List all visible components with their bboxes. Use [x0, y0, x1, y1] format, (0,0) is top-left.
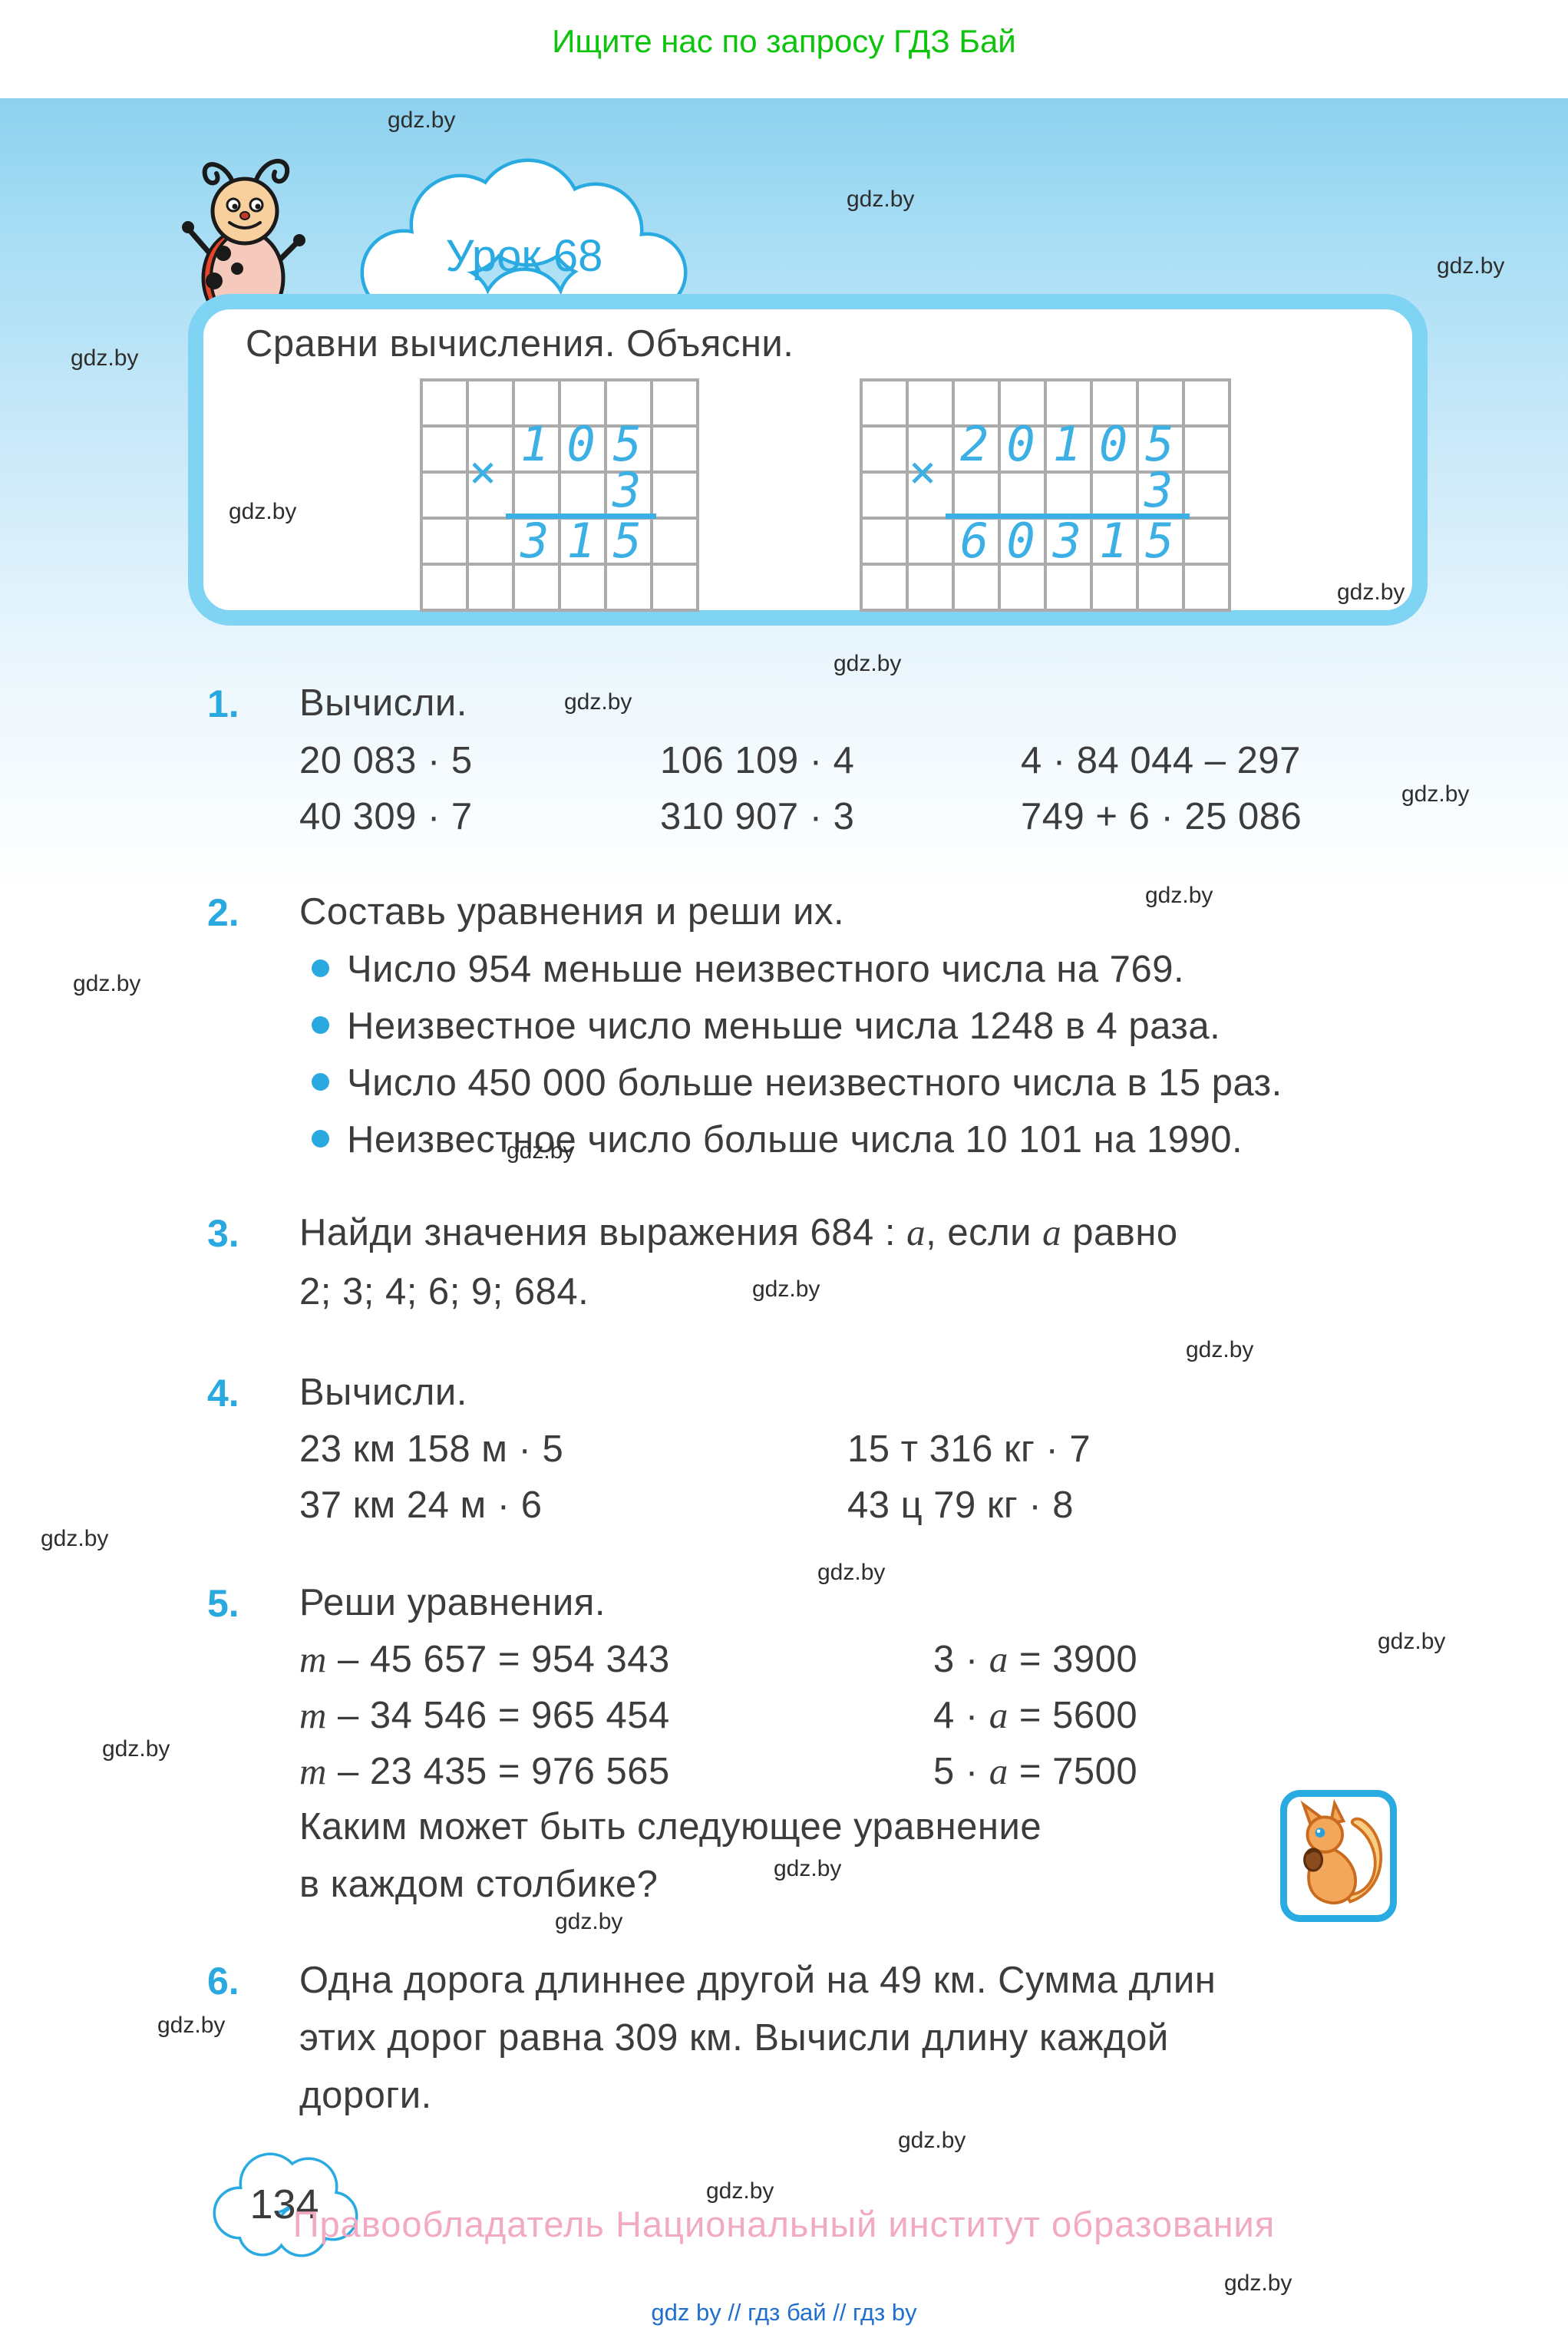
handwritten-multiplier: 3	[1144, 467, 1190, 514]
exercise-5-question: в каждом столбике?	[299, 1863, 658, 1906]
math-var: a	[906, 1211, 926, 1253]
multiplication-sign: ×	[469, 449, 497, 495]
textbook-page: Ищите нас по запросу ГДЗ Бай	[0, 0, 1568, 2338]
text-segment: – 23 435 = 976 565	[327, 1751, 670, 1792]
exercise-1-title: Вычисли.	[299, 682, 467, 725]
watermark: gdz.by	[847, 187, 914, 213]
math-var: a	[1042, 1211, 1061, 1253]
text-segment: , если	[926, 1212, 1042, 1253]
expression: 40 309 · 7	[299, 795, 473, 838]
watermark: gdz.by	[1437, 253, 1504, 279]
watermark: gdz.by	[507, 1138, 574, 1164]
exercise-4-title: Вычисли.	[299, 1371, 467, 1414]
equation: m – 34 546 = 965 454	[299, 1694, 670, 1737]
top-banner-text: Ищите нас по запросу ГДЗ Бай	[0, 23, 1568, 60]
math-var: m	[299, 1638, 327, 1680]
exercise-6-text: этих дорог равна 309 км. Вычисли длину к…	[299, 2016, 1169, 2059]
handwritten-product: 60315	[960, 518, 1192, 564]
math-var: a	[989, 1638, 1008, 1680]
exercise-1-number: 1.	[207, 682, 239, 726]
watermark: gdz.by	[817, 1560, 885, 1586]
expression: 106 109 · 4	[660, 739, 854, 782]
watermark: gdz.by	[898, 2128, 966, 2154]
watermark: gdz.by	[157, 2013, 225, 2039]
math-var: m	[299, 1750, 327, 1792]
multiplication-sign: ×	[909, 449, 936, 495]
text-segment: 4 ·	[933, 1695, 989, 1736]
exercise-3-number: 3.	[207, 1211, 239, 1256]
exercise-6-number: 6.	[207, 1959, 239, 2003]
exercise-2-number: 2.	[207, 890, 239, 935]
watermark: gdz.by	[102, 1736, 170, 1762]
handwritten-multiplicand: 20105	[960, 421, 1192, 467]
watermark: gdz.by	[834, 651, 901, 677]
exercise-2-title: Составь уравнения и реши их.	[299, 890, 844, 933]
bullet-dot	[312, 959, 329, 977]
watermark: gdz.by	[706, 2178, 774, 2204]
equation: m – 23 435 = 976 565	[299, 1750, 670, 1793]
expression: 20 083 · 5	[299, 739, 473, 782]
equation: 5 · a = 7500	[933, 1750, 1137, 1793]
expression: 23 км 158 м · 5	[299, 1428, 563, 1471]
text-segment: = 7500	[1008, 1751, 1137, 1792]
squirrel-box	[1280, 1790, 1397, 1922]
equation: m – 45 657 = 954 343	[299, 1638, 670, 1681]
handwritten-multiplier: 3	[612, 467, 659, 514]
bullet-dot	[312, 1016, 329, 1034]
math-var: a	[989, 1750, 1008, 1792]
text-segment: 5 ·	[933, 1751, 989, 1792]
exercise-5-question: Каким может быть следующее уравнение	[299, 1805, 1041, 1848]
exercise-3-text: Найди значения выражения 684 : a, если a…	[299, 1211, 1178, 1254]
watermark: gdz.by	[555, 1909, 622, 1935]
watermark: gdz.by	[73, 971, 140, 997]
bullet-dot	[312, 1073, 329, 1091]
exercise-6-text: дороги.	[299, 2074, 432, 2117]
handwritten-product: 315	[520, 518, 659, 564]
expression: 37 км 24 м · 6	[299, 1484, 542, 1527]
exercise-5-title: Реши уравнения.	[299, 1581, 606, 1624]
watermark: gdz.by	[1145, 883, 1213, 909]
equation: 4 · a = 5600	[933, 1694, 1137, 1737]
text-segment: 3 ·	[933, 1639, 989, 1680]
text-segment: – 34 546 = 965 454	[327, 1695, 670, 1736]
watermark: gdz.by	[1401, 781, 1469, 807]
watermark: gdz.by	[229, 499, 296, 525]
expression: 4 · 84 044 – 297	[1021, 739, 1301, 782]
footer-links[interactable]: gdz by // гдз бай // гдз by	[0, 2299, 1568, 2326]
text-segment: = 3900	[1008, 1639, 1137, 1680]
watermark: gdz.by	[41, 1526, 108, 1552]
bullet-text: Неизвестное число больше числа 10 101 на…	[347, 1118, 1243, 1161]
math-var: m	[299, 1694, 327, 1736]
bullet-text: Число 954 меньше неизвестного числа на 7…	[347, 948, 1184, 991]
exercise-4-number: 4.	[207, 1371, 239, 1415]
watermark: gdz.by	[71, 345, 138, 372]
exercise-5-number: 5.	[207, 1581, 239, 1626]
intro-title: Сравни вычисления. Объясни.	[246, 322, 794, 365]
squirrel-icon	[1288, 1798, 1389, 1914]
expression: 310 907 · 3	[660, 795, 854, 838]
math-var: a	[989, 1694, 1008, 1736]
text-segment: = 5600	[1008, 1695, 1137, 1736]
expression: 15 т 316 кг · 7	[847, 1428, 1091, 1471]
watermark: gdz.by	[564, 689, 632, 715]
text-segment: равно	[1061, 1212, 1177, 1253]
watermark: gdz.by	[774, 1856, 841, 1882]
text-segment: Найди значения выражения 684 :	[299, 1212, 906, 1253]
equation: 3 · a = 3900	[933, 1638, 1137, 1681]
bullet-dot	[312, 1130, 329, 1148]
watermark: gdz.by	[752, 1276, 820, 1303]
bullet-text: Число 450 000 больше неизвестного числа …	[347, 1062, 1282, 1105]
watermark: gdz.by	[1186, 1337, 1253, 1363]
exercise-6-text: Одна дорога длиннее другой на 49 км. Сум…	[299, 1959, 1216, 2002]
text-segment: – 45 657 = 954 343	[327, 1639, 670, 1680]
handwritten-multiplicand: 105	[520, 421, 659, 467]
expression: 749 + 6 · 25 086	[1021, 795, 1302, 838]
watermark: gdz.by	[1378, 1629, 1445, 1655]
right-multiplication-grid: × 20105 3 60315	[860, 378, 1231, 612]
watermark: gdz.by	[1224, 2270, 1292, 2297]
copyright-text: Правообладатель Национальный институт об…	[0, 2203, 1568, 2245]
lesson-cloud-label: Урок 68	[344, 230, 705, 282]
left-multiplication-grid: × 105 3 315	[420, 378, 699, 612]
watermark: gdz.by	[388, 107, 455, 134]
bullet-text: Неизвестное число меньше числа 1248 в 4 …	[347, 1005, 1220, 1048]
watermark: gdz.by	[1337, 580, 1405, 606]
expression: 43 ц 79 кг · 8	[847, 1484, 1074, 1527]
exercise-3-values: 2; 3; 4; 6; 9; 684.	[299, 1270, 589, 1313]
